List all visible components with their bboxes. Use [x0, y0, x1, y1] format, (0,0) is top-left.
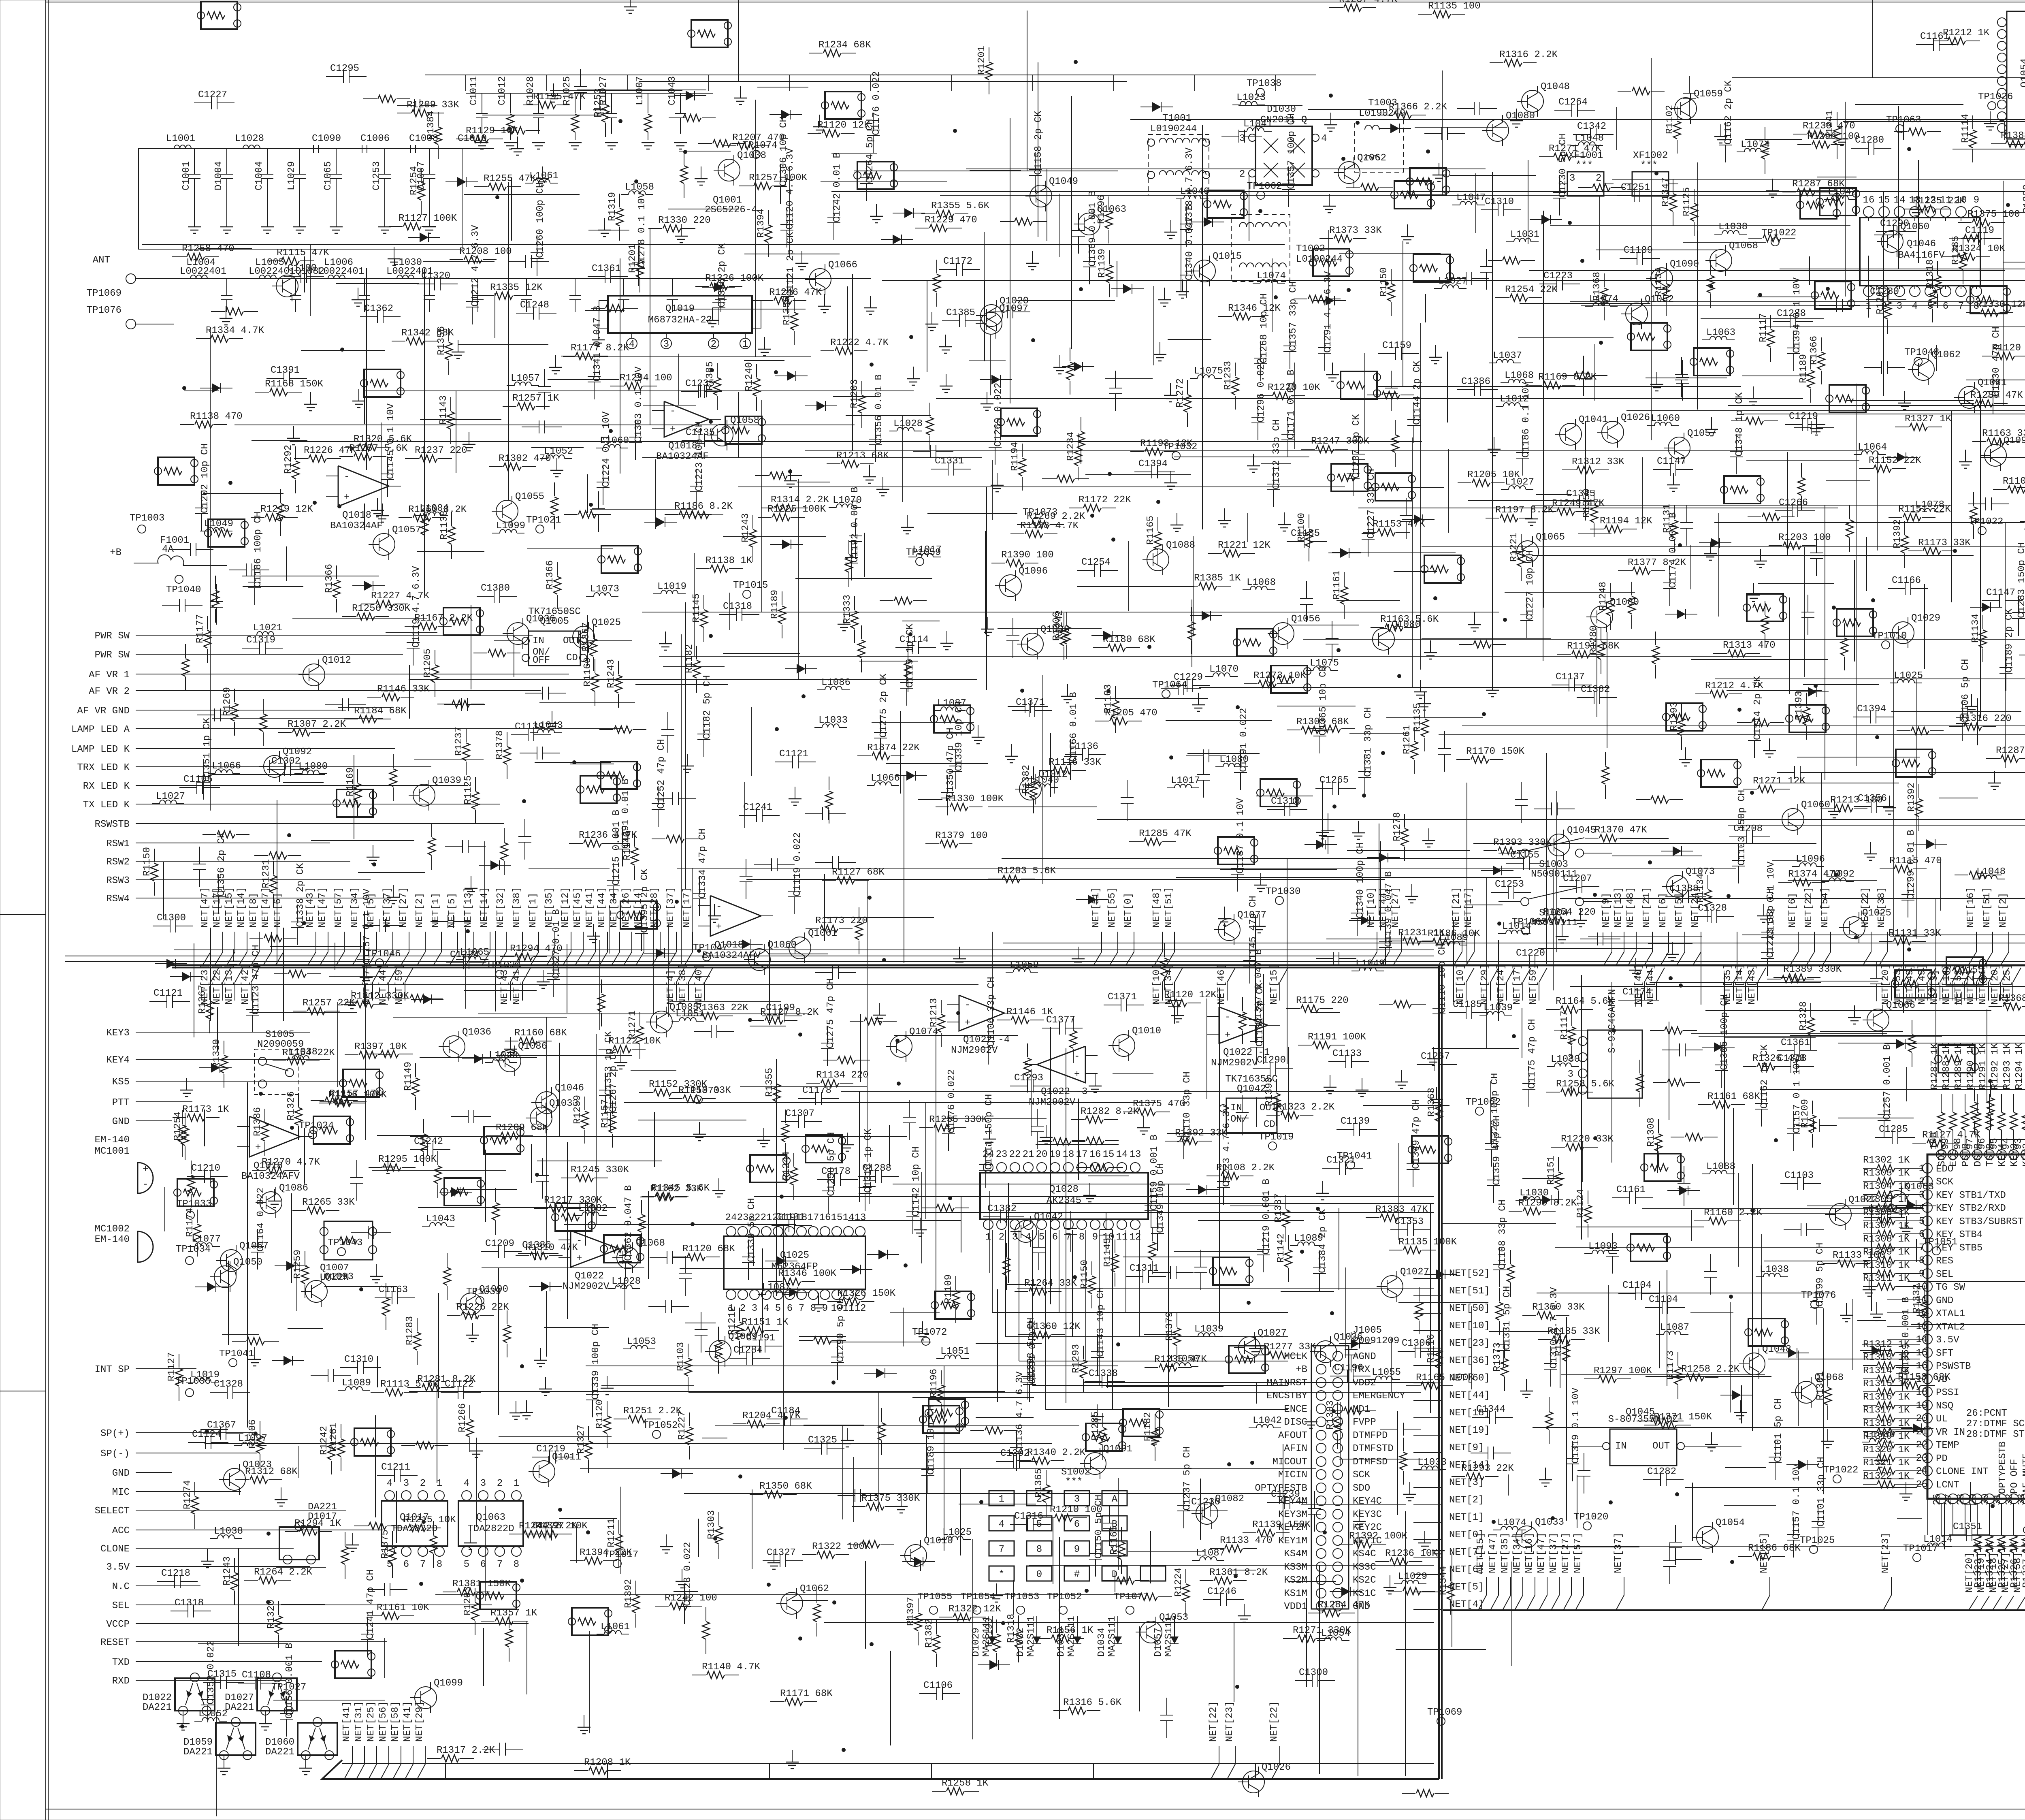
svg-text:R1189: R1189: [1798, 354, 1809, 383]
svg-text:#: #: [1074, 1569, 1080, 1580]
svg-text:R1161 10K: R1161 10K: [377, 1602, 429, 1613]
svg-text:Q1045: Q1045: [1567, 825, 1596, 836]
svg-text:L1037: L1037: [1493, 350, 1522, 361]
svg-text:R1326 100K: R1326 100K: [705, 273, 764, 284]
svg-text:Q1036: Q1036: [462, 1027, 491, 1038]
svg-text:R1235 22K: R1235 22K: [1913, 196, 1965, 207]
svg-text:Q1012: Q1012: [322, 655, 351, 666]
svg-text:R1151 1K: R1151 1K: [742, 1317, 789, 1328]
svg-text:R1258 5.6K: R1258 5.6K: [1556, 1079, 1615, 1090]
svg-text:R1316 1K: R1316 1K: [1863, 1392, 1910, 1403]
svg-text:CLONE: CLONE: [100, 1544, 130, 1555]
svg-text:NET[23]: NET[23]: [1224, 1701, 1235, 1742]
svg-text:AF VR GND: AF VR GND: [77, 706, 130, 717]
svg-text:R1311 1K: R1311 1K: [1863, 1273, 1910, 1284]
svg-text:CLONE INT: CLONE INT: [1936, 1466, 1989, 1477]
svg-text:R1115 47K: R1115 47K: [277, 248, 329, 258]
svg-text:R1125: R1125: [463, 775, 474, 804]
svg-text:TP1062: TP1062: [1247, 181, 1282, 192]
svg-text:NET[19]: NET[19]: [1449, 1425, 1490, 1436]
svg-text:R1234: R1234: [1066, 432, 1076, 461]
svg-text:NET[44]: NET[44]: [1449, 1390, 1490, 1401]
svg-text:L1042: L1042: [1253, 1415, 1282, 1426]
svg-text:L1058: L1058: [625, 182, 654, 193]
svg-text:C1293: C1293: [1014, 1073, 1043, 1084]
svg-text:RSW2: RSW2: [106, 857, 130, 868]
svg-text:KS4M: KS4M: [1284, 1549, 1307, 1560]
svg-text:R1385 1K: R1385 1K: [1194, 573, 1241, 584]
svg-text:R1334 4.7K: R1334 4.7K: [206, 325, 264, 336]
svg-text:C1361: C1361: [1781, 1037, 1810, 1048]
svg-text:R1120 47K: R1120 47K: [1992, 343, 2025, 354]
svg-text:UL: UL: [1936, 1414, 1948, 1425]
svg-text:Q1092: Q1092: [283, 747, 312, 757]
svg-text:R1164 5.6K: R1164 5.6K: [1556, 996, 1614, 1007]
svg-text:Q1048: Q1048: [1541, 81, 1570, 92]
svg-text:Q1066: Q1066: [1886, 1000, 1915, 1011]
svg-text:TP1024: TP1024: [299, 1120, 334, 1131]
svg-text:R1379 100: R1379 100: [935, 830, 988, 841]
svg-text:S1005: S1005: [265, 1029, 294, 1040]
svg-text:R1220: R1220: [2022, 184, 2025, 213]
svg-text:L1038: L1038: [214, 1526, 243, 1537]
svg-text:3: 3: [663, 339, 669, 350]
svg-text:R1264 33K: R1264 33K: [1024, 1278, 1077, 1289]
svg-text:25: 25: [1916, 1479, 1928, 1490]
svg-text:R1237: R1237: [454, 727, 465, 756]
svg-text:-: -: [716, 901, 722, 912]
svg-text:T1001: T1001: [1162, 113, 1192, 124]
svg-text:+: +: [716, 922, 722, 932]
svg-text:L1063: L1063: [1706, 327, 1735, 338]
svg-text:R1389 330K: R1389 330K: [1783, 964, 1842, 975]
svg-text:R1289 47K: R1289 47K: [1970, 390, 2023, 401]
svg-text:NET[47]: NET[47]: [260, 887, 271, 928]
svg-text:R1361 8.2K: R1361 8.2K: [1209, 1567, 1268, 1578]
svg-text:R1227: R1227: [677, 1411, 688, 1440]
svg-text:R1307 1K: R1307 1K: [1863, 1220, 1910, 1231]
svg-text:NET[22]: NET[22]: [1860, 887, 1871, 928]
svg-text:R1285: R1285: [1950, 236, 1961, 265]
svg-text:R1120 12K: R1120 12K: [1164, 990, 1217, 1001]
svg-text:R1397 10K: R1397 10K: [535, 1521, 588, 1532]
svg-text:L1059: L1059: [1010, 960, 1039, 971]
svg-text:2: 2: [740, 1303, 746, 1314]
svg-text:KS1M: KS1M: [1284, 1588, 1307, 1599]
svg-text:R1206: R1206: [247, 1419, 258, 1449]
svg-text:15: 15: [1103, 1149, 1115, 1160]
svg-text:***: ***: [1575, 160, 1593, 171]
svg-text:C1139: C1139: [515, 721, 544, 732]
svg-text:NET[18]: NET[18]: [1988, 1552, 1999, 1593]
svg-text:L1099: L1099: [496, 521, 525, 531]
svg-text:R1127 68K: R1127 68K: [832, 867, 885, 878]
svg-text:Q1025: Q1025: [780, 1250, 809, 1261]
svg-text:22: 22: [1916, 1440, 1928, 1451]
svg-text:TP1054: TP1054: [961, 1592, 995, 1602]
svg-text:C1283 150p CH: C1283 150p CH: [2016, 542, 2025, 618]
svg-text:R1335 12K: R1335 12K: [490, 282, 543, 293]
svg-text:Q1099: Q1099: [434, 1678, 463, 1689]
svg-text:NET[41]: NET[41]: [402, 1701, 413, 1742]
svg-text:NET[22]: NET[22]: [1803, 887, 1814, 928]
svg-text:PD: PD: [1936, 1453, 1948, 1464]
svg-text:RXD: RXD: [112, 1676, 130, 1687]
svg-text:L1077: L1077: [192, 1234, 221, 1245]
svg-text:-: -: [965, 1000, 970, 1011]
svg-text:R1270 4.7K: R1270 4.7K: [262, 1157, 320, 1168]
svg-text:R1173 33K: R1173 33K: [1918, 538, 1971, 548]
svg-text:R1160 2.2K: R1160 2.2K: [1704, 1208, 1763, 1218]
svg-text:R1133 470: R1133 470: [1220, 1535, 1273, 1546]
svg-text:33: 33: [2016, 1494, 2025, 1505]
svg-text:AGND: AGND: [1353, 1351, 1376, 1362]
svg-text:C1196: C1196: [1334, 1363, 1363, 1374]
svg-text:C1006: C1006: [360, 133, 390, 144]
svg-text:KEY4: KEY4: [106, 1055, 130, 1066]
svg-text:2: 2: [711, 339, 716, 350]
svg-text:R1234 68K: R1234 68K: [819, 40, 871, 51]
svg-text:C1155: C1155: [1510, 850, 1539, 861]
svg-text:R1150: R1150: [1079, 1260, 1090, 1289]
svg-text:NET[8]: NET[8]: [248, 893, 259, 928]
svg-text:MC1001: MC1001: [95, 1146, 130, 1157]
svg-text:R1256 330K: R1256 330K: [352, 603, 411, 614]
svg-text:C1290: C1290: [1257, 1055, 1286, 1066]
svg-text:R1287 12K: R1287 12K: [1996, 745, 2025, 756]
svg-text:AF VR 1: AF VR 1: [89, 670, 130, 681]
svg-text:C1133: C1133: [1332, 1048, 1362, 1059]
svg-text:R1138 470: R1138 470: [190, 411, 243, 422]
svg-text:R1139: R1139: [1097, 249, 1108, 278]
svg-text:IN: IN: [1615, 1441, 1627, 1452]
svg-text:R1366 2.2K: R1366 2.2K: [1389, 102, 1447, 113]
svg-text:13: 13: [1916, 1321, 1928, 1332]
svg-text:Q1038: Q1038: [737, 150, 766, 161]
svg-text:R1294 1K: R1294 1K: [294, 1518, 341, 1529]
svg-text:SCK: SCK: [1936, 1177, 1954, 1188]
svg-text:5: 5: [1919, 1216, 1925, 1227]
svg-text:R1296 100: R1296 100: [1807, 131, 1860, 142]
svg-text:TP1025: TP1025: [1800, 1535, 1835, 1546]
svg-text:32: 32: [2004, 1494, 2015, 1505]
svg-text:R1308: R1308: [1646, 1118, 1657, 1147]
svg-text:R1278: R1278: [1392, 812, 1403, 841]
svg-text:R1264 2.2K: R1264 2.2K: [254, 1567, 313, 1578]
svg-text:R1303: R1303: [1325, 1400, 1336, 1430]
svg-text:R1320 5.6K: R1320 5.6K: [354, 434, 412, 445]
svg-text:TP1041: TP1041: [219, 1348, 254, 1359]
svg-text:17: 17: [1076, 1149, 1088, 1160]
svg-text:R1257 22K: R1257 22K: [303, 998, 355, 1009]
svg-text:Q1060: Q1060: [767, 940, 797, 951]
svg-text:R1114: R1114: [1960, 114, 1971, 143]
svg-text:NET[48]: NET[48]: [1151, 887, 1162, 928]
svg-text:R1196: R1196: [929, 1369, 940, 1398]
svg-text:C1328: C1328: [1698, 903, 1727, 914]
svg-text:C1284: C1284: [733, 1345, 763, 1356]
svg-text:NET[13]: NET[13]: [1613, 887, 1624, 928]
svg-text:R1313 470: R1313 470: [1723, 640, 1776, 651]
svg-text:R1165 100K: R1165 100K: [1416, 1372, 1475, 1383]
svg-text:RSW4: RSW4: [106, 894, 130, 905]
svg-text:KEY3C: KEY3C: [1353, 1509, 1382, 1520]
svg-text:PWR SW: PWR SW: [95, 631, 130, 642]
svg-text:R1330 100K: R1330 100K: [945, 794, 1004, 804]
svg-text:R1316 5.6K: R1316 5.6K: [1063, 1697, 1122, 1708]
svg-text:12: 12: [855, 1303, 866, 1314]
svg-text:R1157 47K: R1157 47K: [329, 1088, 382, 1099]
svg-text:C1248: C1248: [520, 300, 549, 311]
svg-text:6: 6: [787, 1303, 793, 1314]
svg-text:2SC5226-4: 2SC5226-4: [705, 205, 757, 215]
svg-text:L1087: L1087: [762, 1282, 791, 1293]
svg-text:LCNT: LCNT: [1936, 1480, 1959, 1491]
svg-text:OPTYPESTB: OPTYPESTB: [1997, 1441, 2008, 1494]
svg-text:C1139: C1139: [1341, 1116, 1370, 1127]
svg-text:XF1002: XF1002: [1633, 150, 1668, 161]
svg-text:9: 9: [1974, 195, 1979, 206]
svg-text:FVPP: FVPP: [1353, 1417, 1376, 1428]
svg-text:R1261: R1261: [1402, 725, 1413, 754]
svg-text:C1001: C1001: [181, 161, 192, 190]
svg-text:NET[36]: NET[36]: [1449, 1355, 1490, 1366]
svg-text:R1212 1K: R1212 1K: [1943, 28, 1990, 38]
svg-text:R1374 22K: R1374 22K: [867, 743, 920, 753]
svg-text:C1362: C1362: [364, 303, 393, 314]
svg-text:6: 6: [403, 1559, 409, 1570]
svg-text:L1029: L1029: [1398, 1571, 1427, 1582]
svg-text:OFF: OFF: [533, 655, 550, 666]
svg-text:4: 4: [1919, 1203, 1925, 1214]
svg-text:RX LED K: RX LED K: [83, 781, 130, 792]
svg-text:L0022401: L0022401: [318, 266, 364, 277]
svg-text:Q1096: Q1096: [1019, 566, 1048, 577]
svg-text:R1149: R1149: [403, 1062, 414, 1091]
svg-text:SFT: SFT: [1936, 1348, 1953, 1359]
svg-text:TP1033: TP1033: [177, 1199, 211, 1210]
svg-text:R1373 33K: R1373 33K: [1329, 225, 1382, 236]
svg-text:NET[23]: NET[23]: [1880, 1532, 1891, 1573]
svg-text:AK2345: AK2345: [1047, 1195, 1081, 1206]
svg-text:Q1093: Q1093: [324, 1272, 354, 1282]
svg-text:1: 1: [985, 1232, 991, 1243]
svg-text:5: 5: [464, 1559, 469, 1570]
svg-text:R1366: R1366: [324, 564, 335, 593]
svg-text:30: 30: [1980, 1494, 1991, 1505]
svg-text:Q1022: Q1022: [1848, 1195, 1878, 1206]
svg-text:R1156 1K: R1156 1K: [1047, 1625, 1093, 1636]
svg-text:R1370 47K: R1370 47K: [1594, 825, 1647, 836]
svg-text:Q1050: Q1050: [233, 1257, 262, 1268]
svg-text:Q1022: Q1022: [575, 1271, 604, 1282]
svg-text:R1221: R1221: [1509, 533, 1520, 562]
svg-text:16: 16: [819, 1212, 831, 1223]
svg-text:NET[0]: NET[0]: [1123, 893, 1134, 928]
svg-text:L1052: L1052: [198, 1709, 228, 1720]
svg-text:9: 9: [1074, 1544, 1080, 1555]
svg-text:R1382: R1382: [924, 1619, 935, 1648]
svg-text:R1243: R1243: [222, 1556, 233, 1585]
svg-text:C1361: C1361: [592, 263, 621, 274]
svg-text:TP1026: TP1026: [1978, 92, 2013, 102]
svg-text:R1302 1K: R1302 1K: [1863, 1155, 1910, 1166]
svg-text:NET[45]: NET[45]: [572, 887, 583, 928]
svg-text:GND: GND: [112, 1116, 130, 1127]
svg-text:R1139 150K: R1139 150K: [1252, 1519, 1311, 1530]
svg-text:Q1022 -3: Q1022 -3: [1041, 1086, 1087, 1097]
svg-text:C1229: C1229: [1174, 672, 1203, 683]
svg-text:KEY STB3/SUBRST: KEY STB3/SUBRST: [1936, 1216, 2023, 1227]
svg-text:R1257 1K: R1257 1K: [512, 393, 559, 404]
svg-text:R1194: R1194: [1010, 442, 1021, 471]
svg-text:Q1046: Q1046: [1907, 239, 1936, 250]
svg-text:R1135 100: R1135 100: [1428, 1, 1481, 12]
svg-text:C1121: C1121: [779, 749, 808, 760]
svg-text:R1297 100K: R1297 100K: [1594, 1366, 1652, 1376]
svg-text:R1169 8.2K: R1169 8.2K: [1538, 372, 1597, 383]
svg-text:C1147: C1147: [1657, 456, 1686, 467]
svg-text:1: 1: [1919, 1163, 1925, 1174]
svg-text:TP1062: TP1062: [1466, 1097, 1501, 1108]
svg-text:R1182: R1182: [684, 644, 695, 673]
svg-text:26:PCNT: 26:PCNT: [1966, 1408, 2007, 1419]
svg-text:NSQ: NSQ: [1936, 1401, 1953, 1412]
svg-text:TP1072: TP1072: [912, 1327, 947, 1338]
svg-text:NET[1]: NET[1]: [528, 893, 539, 928]
svg-text:R1258 2.2K: R1258 2.2K: [1681, 1364, 1740, 1375]
svg-text:R1318: R1318: [1006, 1614, 1017, 1643]
svg-text:Q1001: Q1001: [713, 195, 742, 206]
svg-text:TP1051: TP1051: [1923, 1237, 1957, 1248]
svg-text:C1386: C1386: [1461, 376, 1490, 387]
svg-text:Q1080: Q1080: [1610, 597, 1639, 608]
svg-text:R1320 1K: R1320 1K: [1863, 1444, 1910, 1455]
svg-text:R1283: R1283: [405, 1316, 416, 1345]
svg-text:TP1076: TP1076: [1801, 1290, 1836, 1301]
svg-text:C1285: C1285: [1879, 1124, 1908, 1135]
svg-text:L1028: L1028: [612, 1276, 641, 1287]
svg-text:L1064: L1064: [1858, 442, 1887, 453]
svg-text:C1104: C1104: [1622, 1280, 1652, 1291]
svg-text:Q1054: Q1054: [2019, 58, 2025, 87]
svg-text:L1070: L1070: [833, 495, 862, 506]
svg-text:R1304 1K: R1304 1K: [1863, 1181, 1910, 1192]
svg-text:R1205: R1205: [422, 649, 433, 678]
svg-text:R1213 68K: R1213 68K: [836, 450, 889, 461]
svg-text:Q1015: Q1015: [1213, 251, 1242, 262]
svg-text:14: 14: [1116, 1149, 1128, 1160]
svg-text:Q1025: Q1025: [1862, 908, 1891, 919]
svg-text:R1125: R1125: [1682, 187, 1692, 216]
svg-text:C1220: C1220: [1516, 948, 1545, 959]
svg-text:R1277 33K: R1277 33K: [1264, 1342, 1316, 1353]
svg-text:R1127: R1127: [166, 1352, 177, 1381]
svg-text:TP1019: TP1019: [1259, 1132, 1294, 1143]
svg-text:C1394: C1394: [1857, 704, 1886, 715]
svg-text:Q1097: Q1097: [999, 303, 1028, 314]
svg-text:MCLK: MCLK: [1284, 1351, 1307, 1362]
svg-text:CD: CD: [1264, 1119, 1275, 1130]
svg-text:Q1061: Q1061: [808, 928, 837, 939]
svg-text:R1257 5.6K: R1257 5.6K: [349, 443, 408, 454]
svg-text:R1209 68K: R1209 68K: [496, 1122, 548, 1133]
svg-text:R1381 150K: R1381 150K: [452, 1579, 511, 1590]
svg-text:R1258 470: R1258 470: [182, 243, 234, 254]
svg-text:C1265: C1265: [1319, 775, 1349, 786]
svg-text:L1068: L1068: [1247, 577, 1276, 588]
svg-text:L1087: L1087: [1660, 1322, 1689, 1333]
svg-text:BA4116FV: BA4116FV: [1898, 250, 1945, 261]
svg-text:Q1036: Q1036: [526, 614, 555, 625]
svg-text:S1003: S1003: [1539, 859, 1568, 870]
svg-text:2: 2: [420, 1478, 426, 1489]
svg-text:R1272: R1272: [1175, 378, 1186, 408]
svg-text:C1320: C1320: [421, 271, 450, 282]
svg-text:R1375 330K: R1375 330K: [861, 1493, 920, 1504]
svg-text:L1055: L1055: [1372, 1367, 1401, 1378]
svg-text:L1048: L1048: [1976, 866, 2006, 877]
svg-text:3: 3: [1897, 301, 1902, 312]
svg-text:VDD1: VDD1: [1284, 1601, 1307, 1612]
svg-text:NET[17]: NET[17]: [682, 887, 693, 928]
svg-text:C1199: C1199: [766, 1003, 795, 1013]
svg-text:R1322 100K: R1322 100K: [812, 1541, 871, 1552]
svg-text:NET[41]: NET[41]: [584, 887, 595, 928]
svg-text:8: 8: [1919, 1255, 1925, 1266]
svg-text:R1327 1K: R1327 1K: [1905, 414, 1952, 425]
svg-text:3: 3: [1074, 1494, 1080, 1505]
svg-text:TP1069: TP1069: [1427, 1707, 1462, 1718]
svg-text:R1145: R1145: [1102, 1238, 1113, 1267]
svg-text:14: 14: [843, 1212, 855, 1223]
svg-text:14: 14: [1894, 195, 1906, 206]
svg-text:Q1054: Q1054: [1716, 1517, 1745, 1528]
svg-text:Q1025: Q1025: [592, 617, 621, 628]
svg-text:PWR SW: PWR SW: [95, 650, 130, 661]
svg-text:KEY3: KEY3: [106, 1028, 130, 1039]
svg-text:MICIN: MICIN: [1278, 1470, 1307, 1481]
svg-text:C1147: C1147: [1986, 587, 2015, 598]
svg-text:Q1045: Q1045: [1626, 1407, 1655, 1418]
svg-text:+: +: [344, 492, 350, 503]
svg-text:C1210: C1210: [191, 1163, 220, 1174]
svg-text:C1362: C1362: [1581, 684, 1610, 695]
svg-text:D1034: D1034: [1096, 1628, 1107, 1657]
svg-text:C1316: C1316: [1014, 1511, 1043, 1522]
svg-text:R1120 12K: R1120 12K: [817, 120, 870, 131]
svg-text:NET[51]: NET[51]: [1449, 1286, 1490, 1297]
svg-text:KS2C: KS2C: [1353, 1575, 1376, 1586]
svg-text:Q1066: Q1066: [828, 260, 857, 271]
svg-text:R1120 68K: R1120 68K: [682, 1244, 735, 1255]
svg-text:TP1027: TP1027: [271, 1682, 306, 1693]
svg-text:C1103: C1103: [1784, 1170, 1814, 1181]
svg-text:R1379: R1379: [1164, 1312, 1175, 1341]
svg-text:DA221: DA221: [143, 1702, 172, 1713]
svg-text:NET[19]: NET[19]: [1976, 1552, 1987, 1593]
svg-text:6: 6: [1074, 1519, 1080, 1530]
svg-text:SDO: SDO: [1937, 1149, 1948, 1167]
svg-text:R1211: R1211: [606, 1518, 617, 1547]
svg-text:R1319: R1319: [607, 192, 618, 221]
svg-text:L1051: L1051: [940, 1346, 970, 1357]
svg-text:R1392: R1392: [1892, 519, 1903, 548]
svg-text:R1368 470: R1368 470: [1998, 993, 2025, 1004]
svg-text:L1023: L1023: [1236, 92, 1266, 103]
svg-text:Q1018: Q1018: [668, 441, 697, 452]
svg-text:RSW3: RSW3: [106, 875, 130, 886]
